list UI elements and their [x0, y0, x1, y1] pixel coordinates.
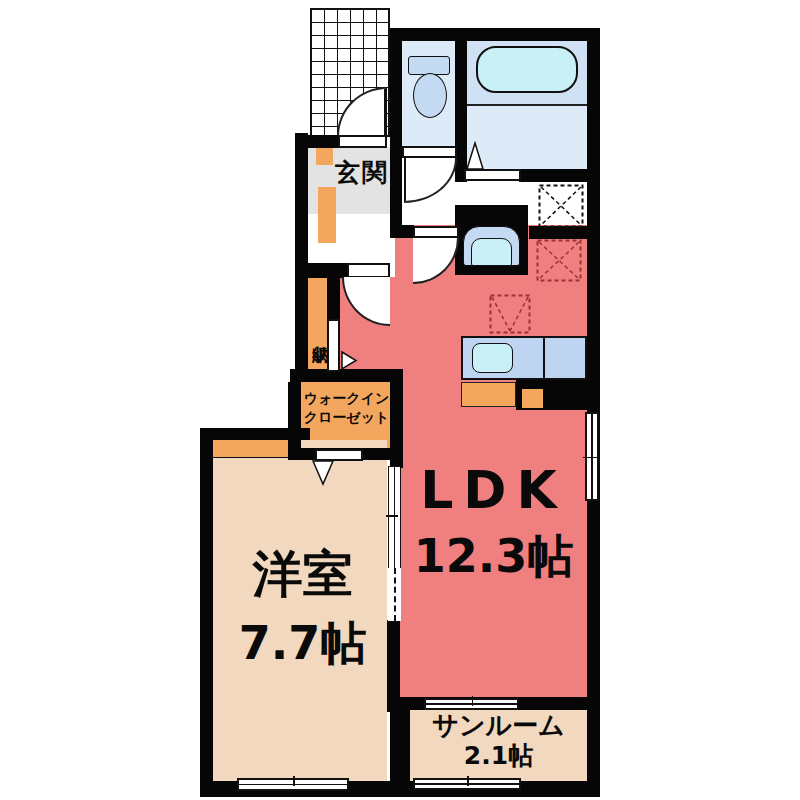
- wall: [200, 428, 310, 440]
- western-room-size: 7.7帖: [215, 618, 390, 669]
- kitchen-cabinet-icon: [461, 382, 516, 407]
- window: [237, 778, 349, 791]
- entrance-door-threshold: [338, 135, 387, 148]
- wall: [390, 225, 414, 238]
- wall: [200, 428, 213, 781]
- kitchen-cabinet-icon: [522, 389, 543, 408]
- walk-in-closet-label-line2: クローゼット: [299, 408, 394, 427]
- sunroom-size: 2.1帖: [412, 742, 585, 770]
- window: [424, 698, 519, 710]
- stove-marker: [489, 294, 531, 334]
- closet-cabinet-icon: [210, 438, 298, 458]
- refrigerator-space-marker: [536, 239, 582, 282]
- ldk-size: 12.3帖: [400, 531, 587, 582]
- ldk-door-threshold: [413, 226, 459, 238]
- toilet-door-threshold: [402, 146, 457, 158]
- kitchen-counter-divider: [543, 337, 545, 379]
- sunroom-label: サンルーム 2.1帖: [412, 711, 585, 769]
- window: [585, 412, 599, 501]
- western-room-name: 洋室: [215, 547, 390, 602]
- walk-in-closet-label-line1: ウォークイン: [299, 389, 394, 408]
- wall: [390, 28, 600, 41]
- wall: [390, 710, 410, 795]
- sunroom-name: サンルーム: [412, 711, 585, 740]
- western-room-label: 洋室 7.7帖: [215, 547, 390, 669]
- washer-space-marker: [538, 184, 584, 228]
- shoe-cabinet-icon: [318, 187, 336, 243]
- bathroom-floor: [467, 106, 587, 170]
- bathtub: [476, 46, 578, 93]
- ldk-label: LDK 12.3帖: [400, 462, 587, 582]
- bathroom-door-swing-triangle: [465, 141, 485, 171]
- toilet-bowl: [413, 73, 447, 118]
- walk-in-closet-label: ウォークイン クローゼット: [299, 389, 394, 427]
- storage-label: 収納: [304, 292, 330, 372]
- wall: [519, 169, 587, 182]
- wall: [390, 28, 402, 226]
- wall: [300, 135, 340, 148]
- floor-plan: 玄関 収納 ウォークイン クローゼット 洋室 7.7帖 LDK 12.3帖 サン…: [0, 0, 800, 800]
- window: [413, 778, 521, 790]
- genkan-label: 玄関: [328, 159, 396, 187]
- kitchen-sink: [472, 343, 513, 373]
- washbasin-bowl: [471, 238, 512, 266]
- closet-door-swing-triangle: [311, 459, 335, 486]
- ldk-name: LDK: [400, 462, 587, 519]
- storage-door-swing-triangle: [340, 350, 358, 371]
- genkan-hall-door-threshold: [347, 263, 390, 278]
- wall: [295, 263, 347, 278]
- toilet-door-arc: [404, 158, 457, 203]
